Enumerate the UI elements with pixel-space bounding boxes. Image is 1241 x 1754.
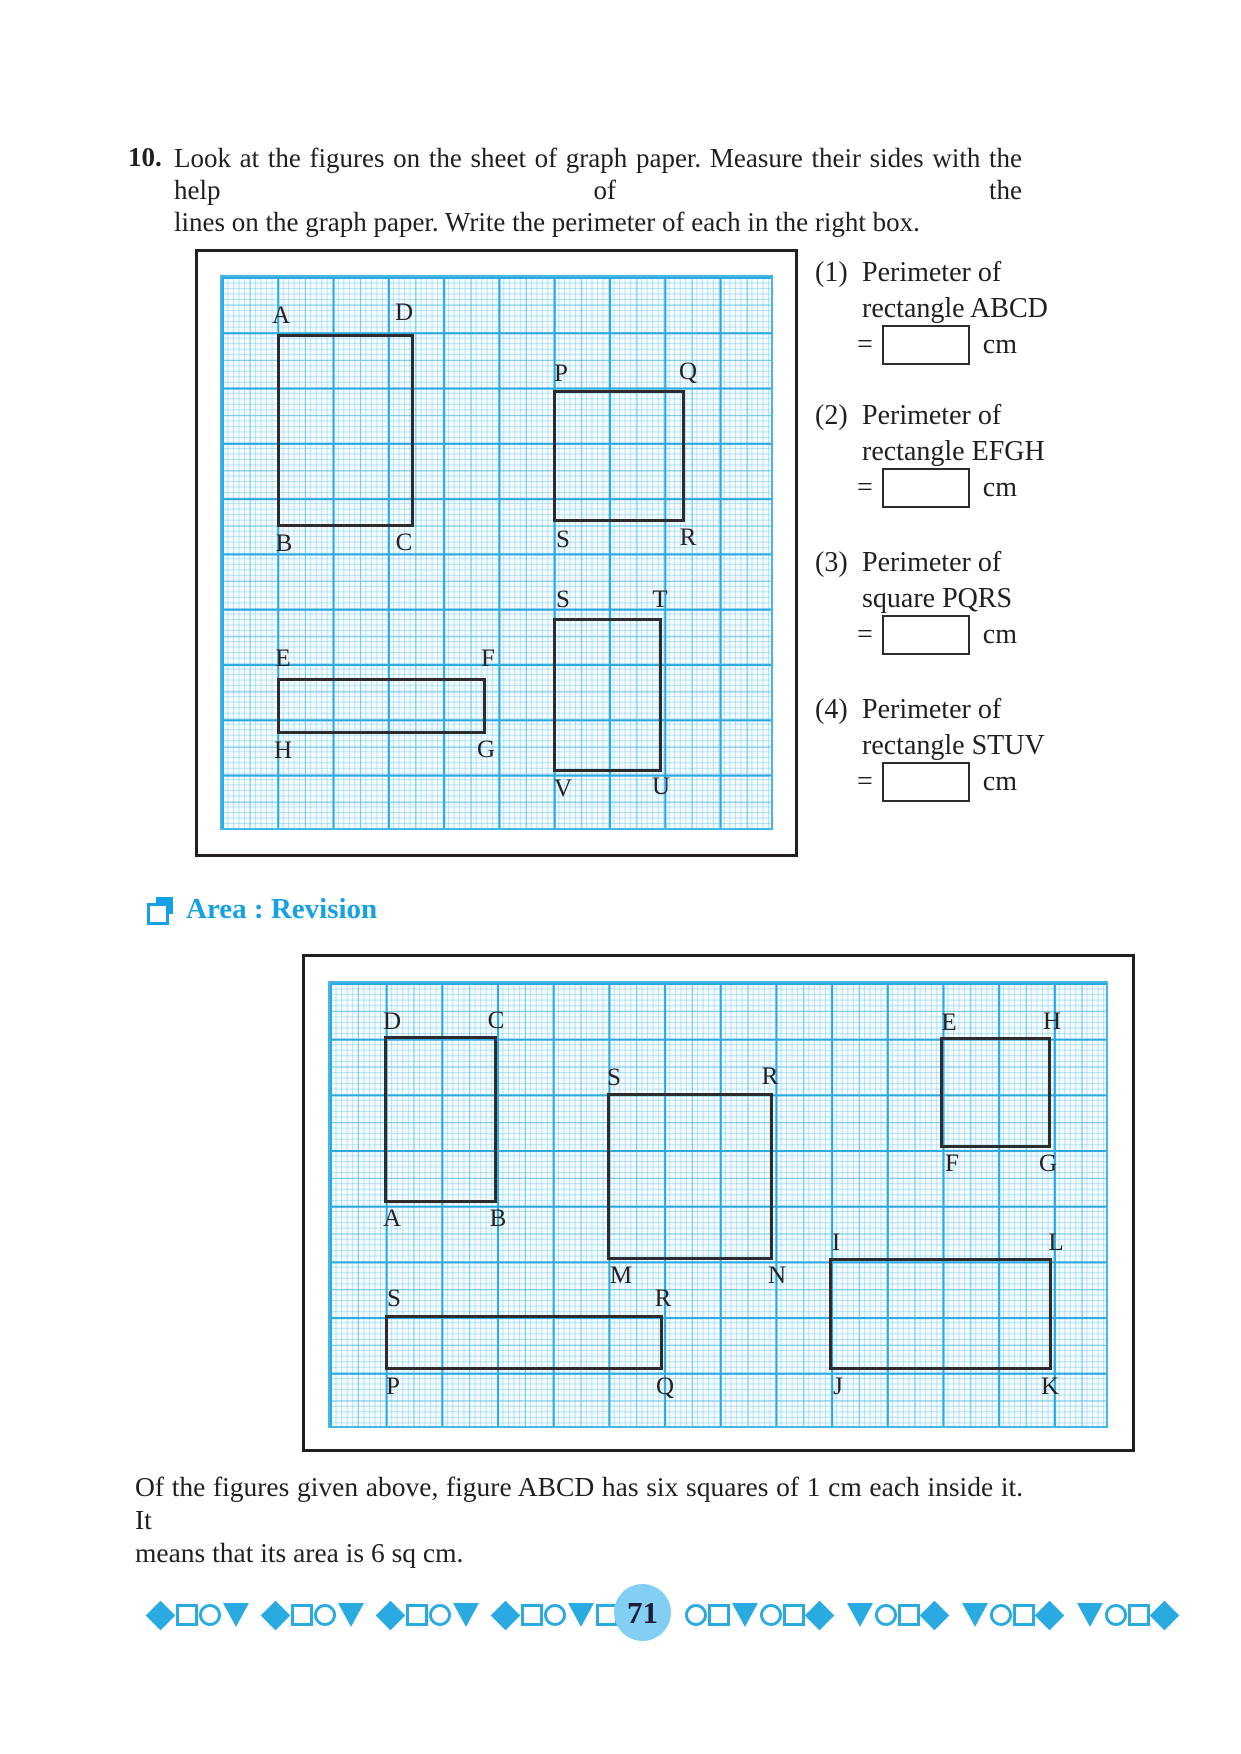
triangle-icon (568, 1603, 594, 1627)
vertex-label-G: G (1039, 1151, 1057, 1177)
vertex-label-T: T (652, 587, 667, 613)
circle-icon (199, 1604, 221, 1626)
triangle-icon (453, 1603, 479, 1627)
vertex-label-F: F (481, 646, 495, 672)
vertex-label-R: R (655, 1286, 672, 1312)
answer-box[interactable] (882, 615, 970, 655)
circle-icon (314, 1604, 336, 1626)
vertex-label-K: K (1041, 1374, 1059, 1400)
vertex-label-B: B (490, 1206, 507, 1232)
vertex-label-U: U (652, 774, 670, 800)
triangle-icon (732, 1603, 758, 1627)
shape-group (376, 1603, 480, 1627)
textbook-page: 10. Look at the figures on the sheet of … (0, 0, 1241, 1754)
vertex-label-S: S (387, 1286, 401, 1312)
square-icon (708, 1604, 730, 1626)
vertex-label-C: C (488, 1008, 505, 1034)
vertex-label-S: S (607, 1065, 621, 1091)
figure-rect-EFGH (277, 678, 486, 734)
vertex-label-G: G (477, 737, 495, 763)
vertex-label-Q: Q (656, 1374, 674, 1400)
vertex-label-P: P (386, 1374, 400, 1400)
question-number: 10. (128, 142, 162, 173)
answer-row: = cm (857, 614, 1017, 656)
vertex-label-H: H (1043, 1009, 1061, 1035)
equals-sign: = (857, 765, 873, 799)
circle-icon (760, 1604, 782, 1626)
circle-icon (544, 1604, 566, 1626)
paragraph-line-1: Of the figures given above, figure ABCD … (135, 1470, 1023, 1536)
item-number: (2) (815, 399, 848, 433)
item-number: (1) (815, 256, 848, 290)
triangle-icon (962, 1603, 988, 1627)
vertex-label-R: R (762, 1064, 779, 1090)
paragraph-line-2: means that its area is 6 sq cm. (135, 1536, 1023, 1569)
item-text: square PQRS (862, 582, 1012, 616)
circle-icon (685, 1604, 707, 1626)
equals-sign: = (857, 618, 873, 652)
vertex-label-I: I (832, 1230, 840, 1256)
vertex-label-J: J (833, 1374, 843, 1400)
vertex-label-L: L (1048, 1230, 1063, 1256)
vertex-label-C: C (396, 530, 413, 556)
answer-box[interactable] (882, 468, 970, 508)
item-text: Perimeter of (862, 256, 1001, 290)
item-text: rectangle EFGH (862, 435, 1045, 469)
item-text: Perimeter of (862, 399, 1001, 433)
diamond-icon (805, 1600, 835, 1630)
figure-rect-ILJK (829, 1258, 1052, 1370)
vertex-label-P: P (554, 361, 568, 387)
footer-shape-border-right (684, 1598, 1179, 1632)
unit-label: cm (983, 328, 1017, 362)
diamond-icon (261, 1600, 291, 1630)
vertex-label-B: B (276, 531, 293, 557)
vertex-label-F: F (945, 1151, 959, 1177)
item-number: (3) (815, 546, 848, 580)
unit-label: cm (983, 618, 1017, 652)
figure-rect-STUV (553, 618, 662, 772)
equals-sign: = (857, 328, 873, 362)
diamond-icon (376, 1600, 406, 1630)
vertex-label-M: M (610, 1263, 632, 1289)
shape-group (1075, 1603, 1179, 1627)
triangle-icon (338, 1603, 364, 1627)
unit-label: cm (983, 471, 1017, 505)
vertex-label-V: V (554, 776, 572, 802)
vertex-label-H: H (274, 738, 292, 764)
triangle-icon (1077, 1603, 1103, 1627)
figure-rect-SPQR (385, 1315, 663, 1370)
question-line-1: Look at the figures on the sheet of grap… (174, 142, 1022, 206)
shape-group (960, 1603, 1064, 1627)
item-text: rectangle ABCD (862, 292, 1048, 326)
diamond-icon (1150, 1600, 1180, 1630)
vertex-label-S: S (556, 527, 570, 553)
triangle-icon (847, 1603, 873, 1627)
square-icon (406, 1604, 428, 1626)
vertex-label-S: S (556, 587, 570, 613)
circle-icon (990, 1604, 1012, 1626)
figure-rect-ABCD (277, 334, 414, 527)
figure-rect-DCAB (384, 1036, 497, 1203)
vertex-label-D: D (383, 1009, 401, 1035)
vertex-label-R: R (680, 525, 697, 551)
square-icon (898, 1604, 920, 1626)
square-icon (291, 1604, 313, 1626)
vertex-label-E: E (275, 646, 290, 672)
figure-rect-SRMN (607, 1093, 773, 1260)
section-squares-icon (147, 897, 177, 927)
circle-icon (1105, 1604, 1127, 1626)
item-text: Perimeter of (862, 693, 1001, 727)
item-number: (4) (815, 693, 848, 727)
item-text: Perimeter of (862, 546, 1001, 580)
item-text: rectangle STUV (862, 729, 1045, 763)
diamond-icon (146, 1600, 176, 1630)
circle-icon (429, 1604, 451, 1626)
square-icon (521, 1604, 543, 1626)
answer-box[interactable] (882, 762, 970, 802)
question-line-2: lines on the graph paper. Write the peri… (174, 206, 1022, 238)
vertex-label-A: A (383, 1206, 401, 1232)
vertex-label-E: E (941, 1010, 956, 1036)
page-number-badge: 71 (614, 1584, 671, 1641)
vertex-label-Q: Q (679, 359, 697, 385)
footer-shape-border-left (146, 1598, 641, 1632)
shape-group (684, 1603, 834, 1627)
answer-row: = cm (857, 467, 1017, 509)
triangle-icon (223, 1603, 249, 1627)
answer-box[interactable] (882, 325, 970, 365)
diamond-icon (1035, 1600, 1065, 1630)
figure-rect-PQRS (553, 390, 685, 522)
square-icon (783, 1604, 805, 1626)
vertex-label-N: N (768, 1263, 786, 1289)
square-icon (1128, 1604, 1150, 1626)
circle-icon (875, 1604, 897, 1626)
explanation-paragraph: Of the figures given above, figure ABCD … (135, 1470, 1023, 1569)
diamond-icon (491, 1600, 521, 1630)
vertex-label-D: D (395, 300, 413, 326)
unit-label: cm (983, 765, 1017, 799)
section-heading: Area : Revision (186, 893, 377, 926)
answer-row: = cm (857, 761, 1017, 803)
diamond-icon (920, 1600, 950, 1630)
square-icon (1013, 1604, 1035, 1626)
equals-sign: = (857, 471, 873, 505)
question-text: Look at the figures on the sheet of grap… (174, 142, 1022, 238)
square-icon (176, 1604, 198, 1626)
shape-group (146, 1603, 250, 1627)
shape-group (261, 1603, 365, 1627)
shape-group (845, 1603, 949, 1627)
answer-row: = cm (857, 324, 1017, 366)
figure-rect-EHFG (940, 1037, 1051, 1148)
vertex-label-A: A (272, 303, 290, 329)
